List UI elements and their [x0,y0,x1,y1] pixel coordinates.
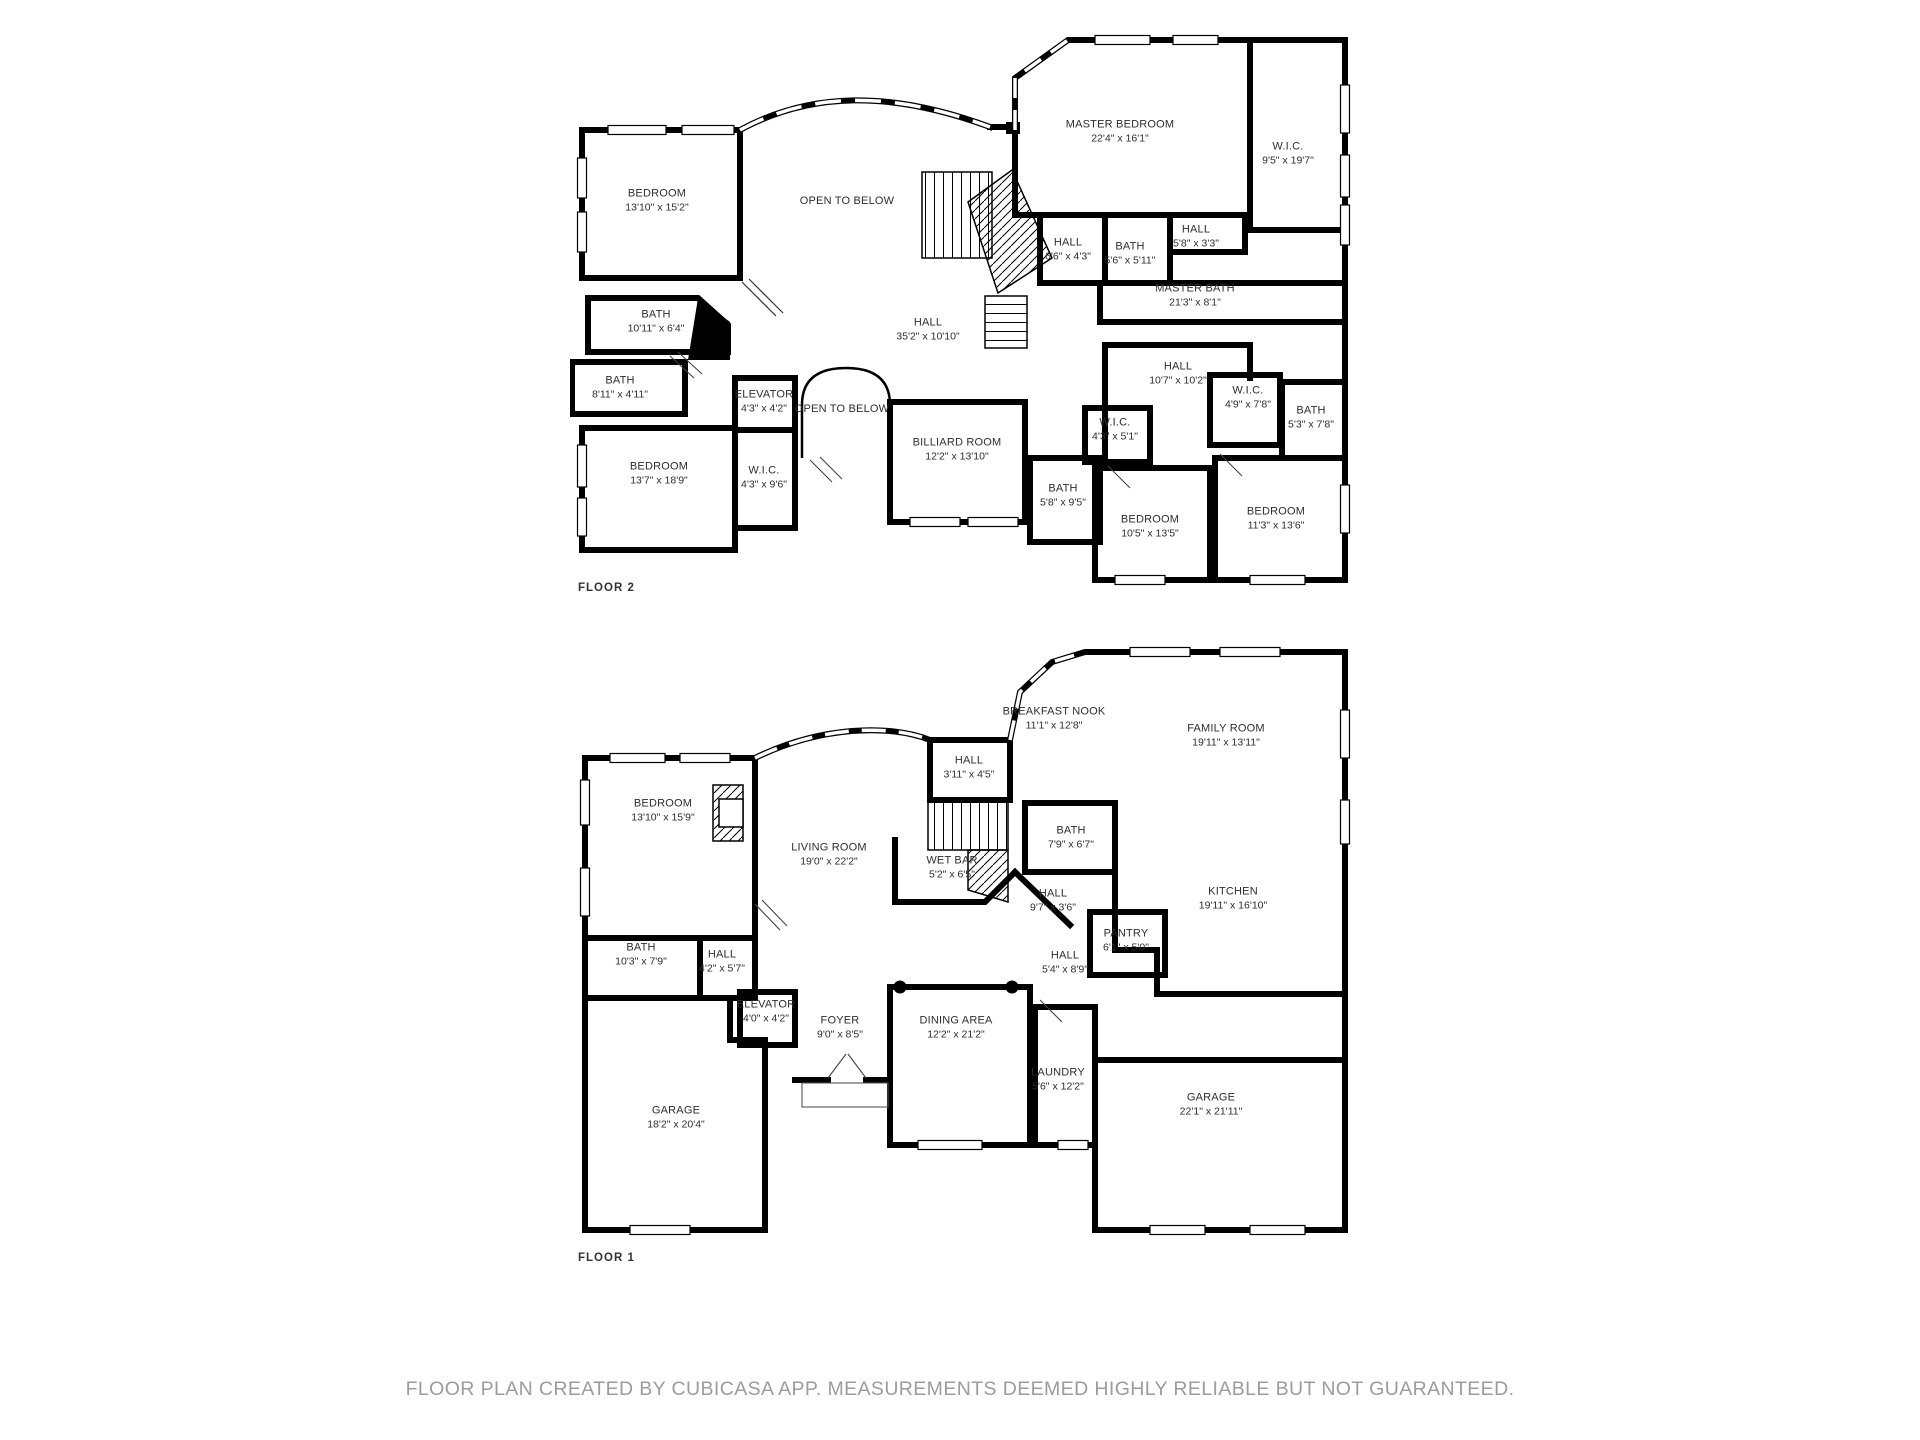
room-label: OPEN TO BELOW [800,195,895,209]
room-label: HALL9'7" x 3'6" [1030,888,1076,915]
room-label: GARAGE18'2" x 20'4" [647,1105,705,1132]
room-label: LAUNDRY5'6" x 12'2" [1031,1067,1085,1094]
room-label: BATH5'6" x 5'11" [1105,241,1156,268]
room-label: HALL10'7" x 10'2" [1149,361,1207,388]
room-label: BATH7'9" x 6'7" [1048,825,1094,852]
room-label: BATH5'3" x 7'8" [1288,405,1334,432]
room-label: KITCHEN19'11" x 16'10" [1199,886,1268,913]
room-label: BEDROOM10'5" x 13'5" [1121,514,1179,541]
room-label: BATH8'11" x 4'11" [592,375,648,402]
room-label: HALL35'2" x 10'10" [896,317,959,344]
room-label: W.I.C.4'3" x 5'1" [1092,417,1138,444]
room-label: BREAKFAST NOOK11'1" x 12'8" [1003,706,1106,733]
floorplan-page: BEDROOM13'10" x 15'2"OPEN TO BELOWMASTER… [0,0,1920,1440]
room-label: W.I.C.4'3" x 9'6" [741,465,787,492]
room-label: BATH10'3" x 7'9" [615,942,667,969]
room-label: DINING AREA12'2" x 21'2" [919,1015,992,1042]
room-label: MASTER BATH21'3" x 8'1" [1155,283,1235,310]
floor-1-plan: BREAKFAST NOOK11'1" x 12'8"FAMILY ROOM19… [570,640,1360,1280]
room-label: BEDROOM11'3" x 13'6" [1247,506,1305,533]
room-label: FOYER9'0" x 8'5" [817,1015,863,1042]
room-label: MASTER BEDROOM22'4" x 16'1" [1066,119,1175,146]
room-label: HALL3'11" x 4'5" [944,755,995,782]
room-label: GARAGE22'1" x 21'11" [1180,1092,1243,1119]
room-label: BEDROOM13'7" x 18'9" [630,461,688,488]
room-label: BATH10'11" x 6'4" [628,309,685,336]
room-label: HALL5'8" x 3'3" [1173,224,1219,251]
room-label: W.I.C.4'9" x 7'8" [1225,385,1271,412]
floor-1-label: FLOOR 1 [578,1252,635,1264]
room-label: HALL5'4" x 8'9" [1042,950,1088,977]
floor-2-plan: BEDROOM13'10" x 15'2"OPEN TO BELOWMASTER… [570,30,1360,630]
room-label: WET BAR5'2" x 6'5" [926,855,977,882]
room-label: LIVING ROOM19'0" x 22'2" [791,842,867,869]
floor-1-room-labels: BREAKFAST NOOK11'1" x 12'8"FAMILY ROOM19… [570,640,1360,1280]
floor-2-room-labels: BEDROOM13'10" x 15'2"OPEN TO BELOWMASTER… [570,30,1360,630]
room-label: BATH5'8" x 9'5" [1040,483,1086,510]
room-label: PANTRY6'1" x 5'0" [1103,928,1149,955]
room-label: OPEN TO BELOW [795,403,890,417]
room-label: HALL4'2" x 5'7" [699,949,745,976]
room-label: BEDROOM13'10" x 15'9" [631,798,694,825]
room-label: ELEVATOR4'0" x 4'2" [737,999,795,1026]
room-label: W.I.C.9'5" x 19'7" [1262,141,1314,168]
room-label: FAMILY ROOM19'11" x 13'11" [1187,723,1265,750]
room-label: HALL6'6" x 4'3" [1045,237,1091,264]
footer-disclaimer: FLOOR PLAN CREATED BY CUBICASA APP. MEAS… [0,1378,1920,1401]
room-label: ELEVATOR4'3" x 4'2" [735,389,793,416]
room-label: BILLIARD ROOM12'2" x 13'10" [913,437,1002,464]
floor-2-label: FLOOR 2 [578,582,635,594]
room-label: BEDROOM13'10" x 15'2" [625,188,688,215]
